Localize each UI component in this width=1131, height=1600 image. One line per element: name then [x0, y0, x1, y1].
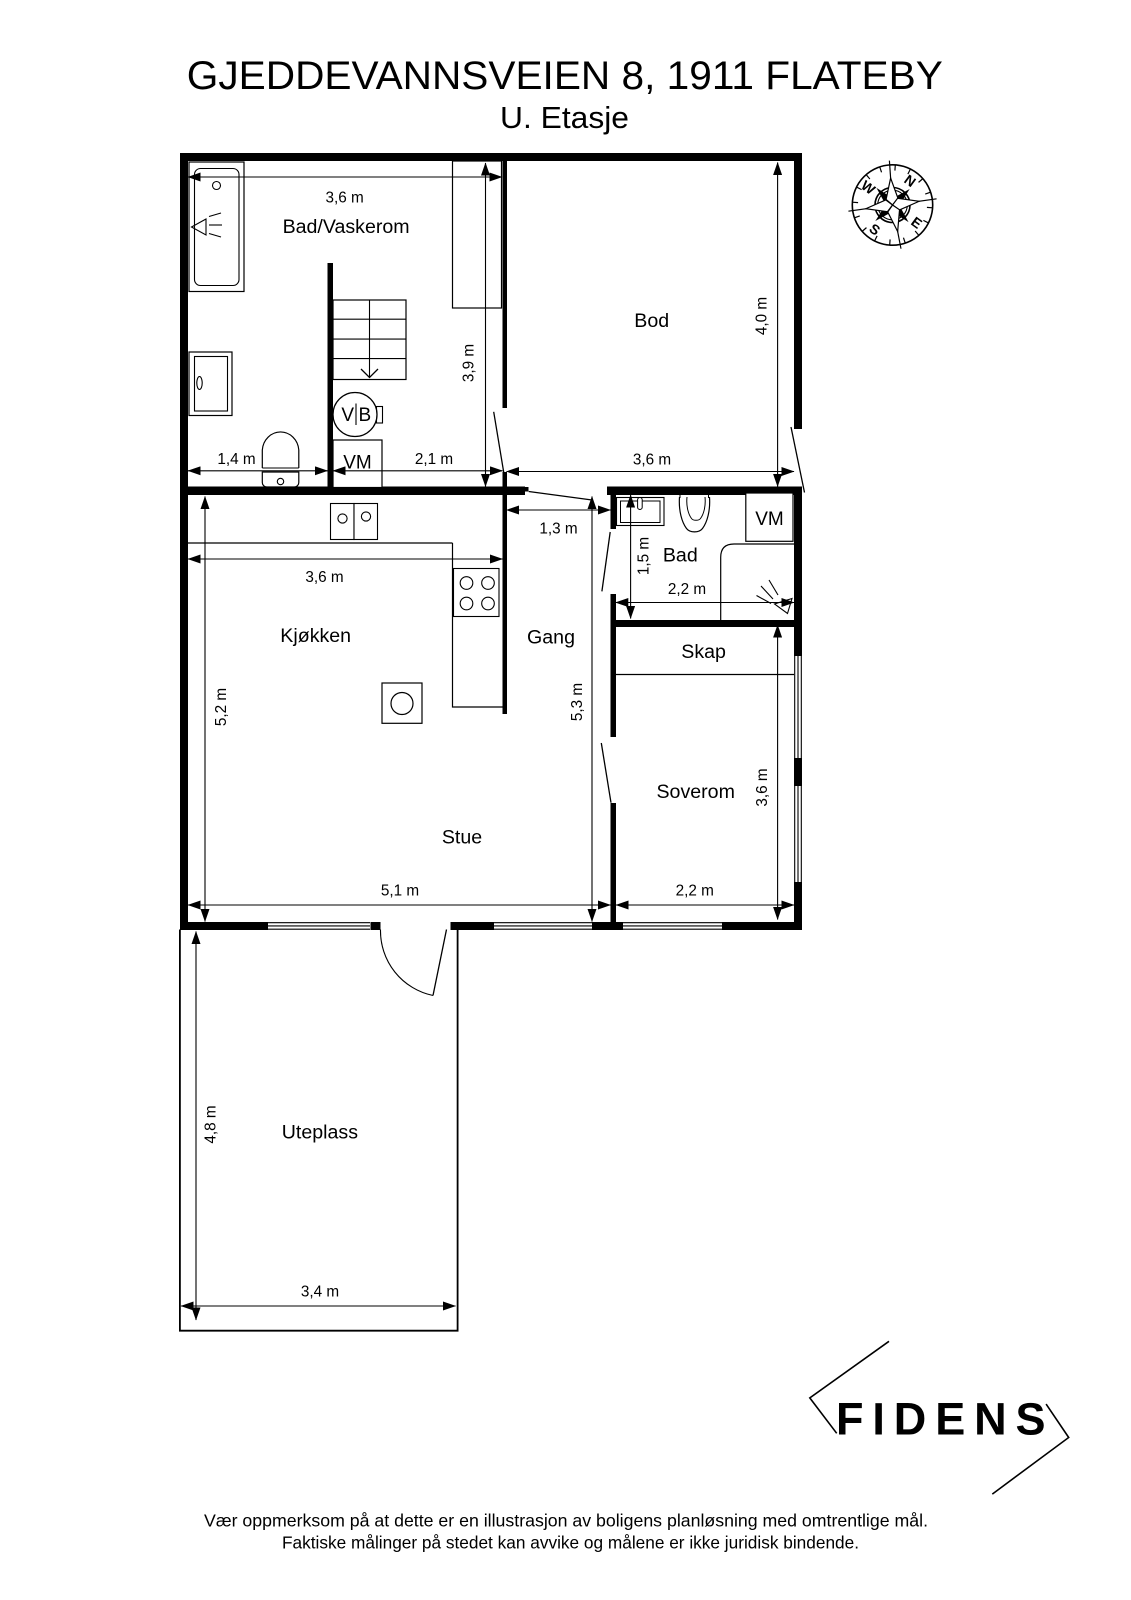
svg-text:3,9 m: 3,9 m [461, 344, 478, 382]
svg-text:GJEDDEVANNSVEIEN 8, 1911 FLATE: GJEDDEVANNSVEIEN 8, 1911 FLATEBY [187, 53, 943, 98]
svg-text:Bad/Vaskerom: Bad/Vaskerom [283, 216, 410, 238]
svg-text:Kjøkken: Kjøkken [280, 625, 351, 647]
svg-text:2,1 m: 2,1 m [415, 451, 453, 468]
svg-text:Bod: Bod [634, 310, 669, 332]
svg-text:1,3 m: 1,3 m [539, 521, 577, 538]
svg-text:2,2 m: 2,2 m [668, 581, 706, 598]
svg-text:5,2 m: 5,2 m [213, 688, 230, 726]
svg-text:Vær oppmerksom på at dette er: Vær oppmerksom på at dette er en illustr… [204, 1511, 928, 1531]
svg-text:1,5 m: 1,5 m [636, 537, 653, 575]
svg-text:4,0 m: 4,0 m [754, 297, 771, 335]
svg-text:Bad: Bad [663, 545, 698, 567]
svg-text:5,3 m: 5,3 m [569, 683, 586, 721]
svg-text:1,4 m: 1,4 m [217, 451, 255, 468]
svg-text:3,6 m: 3,6 m [305, 569, 343, 586]
svg-text:2,2 m: 2,2 m [676, 883, 714, 900]
svg-text:Uteplass: Uteplass [282, 1122, 358, 1144]
svg-text:Gang: Gang [527, 627, 575, 649]
svg-text:Stue: Stue [442, 827, 482, 849]
svg-text:Skap: Skap [681, 641, 726, 663]
svg-text:Faktiske målinger på stedet ka: Faktiske målinger på stedet kan avvike o… [282, 1533, 859, 1553]
svg-text:B: B [359, 405, 372, 426]
svg-text:FIDENS: FIDENS [836, 1394, 1054, 1445]
svg-text:4,8 m: 4,8 m [203, 1105, 220, 1143]
svg-text:U. Etasje: U. Etasje [500, 100, 629, 135]
svg-text:3,6 m: 3,6 m [633, 452, 671, 469]
svg-text:3,4 m: 3,4 m [301, 1284, 339, 1301]
svg-text:Soverom: Soverom [656, 781, 734, 803]
svg-text:3,6 m: 3,6 m [325, 190, 363, 207]
svg-text:VM: VM [755, 509, 784, 530]
svg-text:3,6 m: 3,6 m [754, 768, 771, 806]
svg-text:5,1 m: 5,1 m [381, 883, 419, 900]
svg-text:V: V [341, 405, 354, 426]
